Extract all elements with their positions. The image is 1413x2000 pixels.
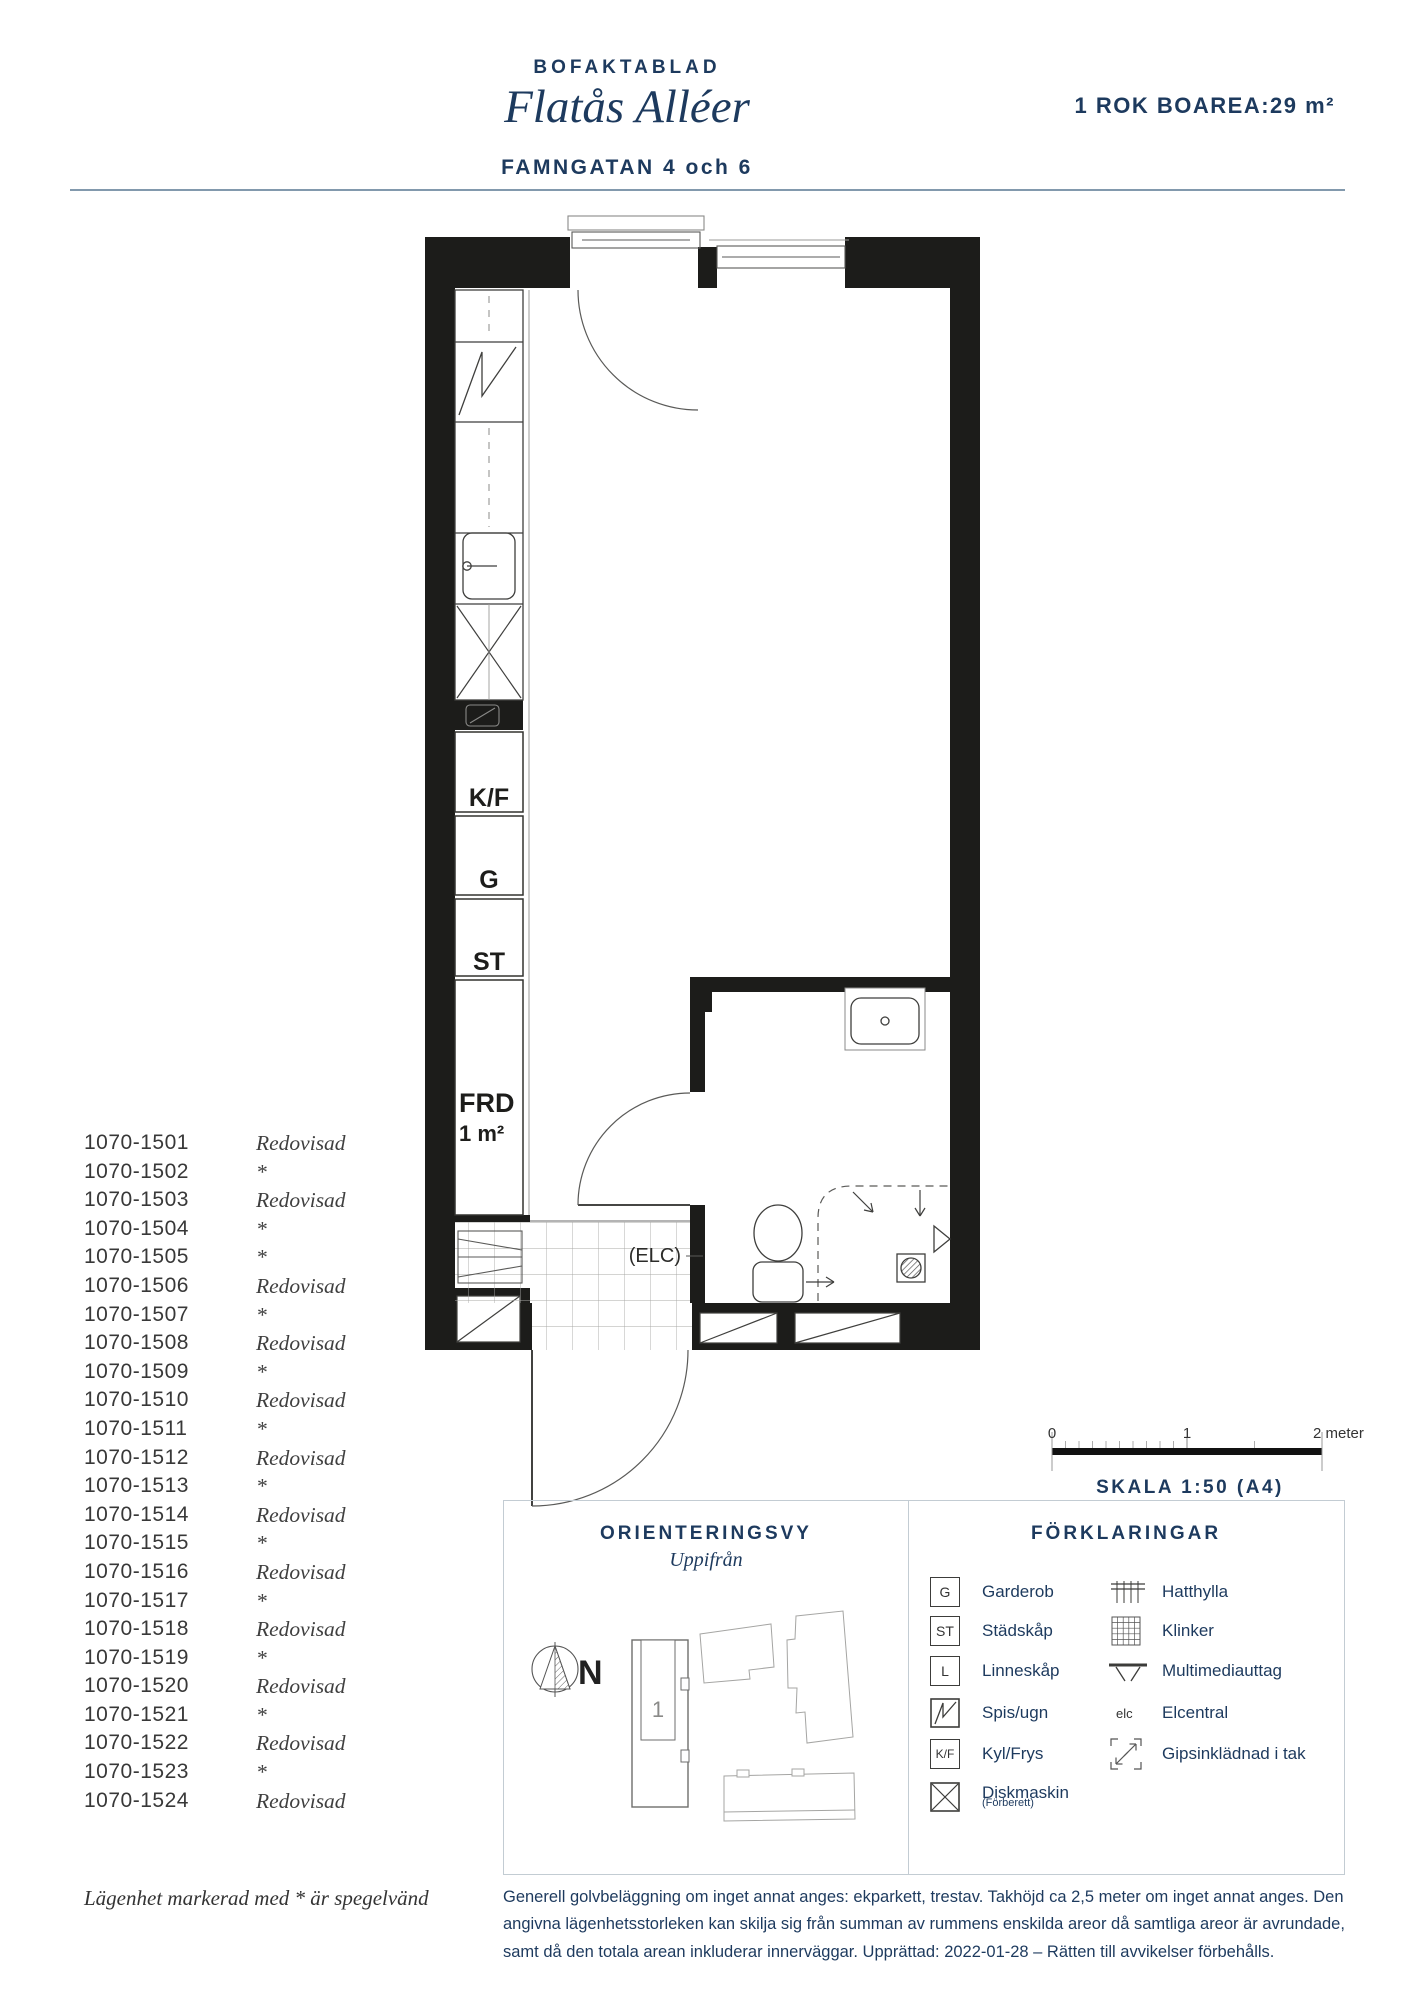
apartment-status: Redovisad — [256, 1386, 346, 1415]
apartment-status: Redovisad — [256, 1729, 346, 1758]
building-1-label: 1 — [652, 1697, 664, 1722]
apartment-row: 1070-1504 * — [84, 1215, 384, 1244]
building-3 — [787, 1611, 853, 1743]
legend-label-stadskap: Städskåp — [982, 1616, 1053, 1646]
apartment-status: * — [256, 1215, 267, 1244]
dishwasher-icon — [457, 604, 521, 700]
scale-label: SKALA 1:50 (A4) — [1040, 1477, 1340, 1499]
shower-boundary — [818, 1186, 948, 1301]
apartment-status: * — [256, 1758, 267, 1787]
legend-label-kylfrys: Kyl/Frys — [982, 1739, 1043, 1769]
building-4 — [724, 1773, 855, 1821]
apartment-status: * — [256, 1472, 267, 1501]
apartment-status: Redovisad — [256, 1558, 346, 1587]
apartment-id: 1070-1508 — [84, 1329, 189, 1358]
apartment-status: Redovisad — [256, 1501, 346, 1530]
apartment-id: 1070-1510 — [84, 1386, 189, 1415]
building-1 — [632, 1640, 689, 1807]
apartment-row: 1070-1505 * — [84, 1243, 384, 1272]
doc-type-heading: BOFAKTABLAD — [0, 57, 1254, 79]
apartment-row: 1070-1522 Redovisad — [84, 1729, 384, 1758]
floor-plan: K/F G ST FRD 1 m² (ELC) — [420, 210, 995, 1515]
apartment-row: 1070-1523 * — [84, 1758, 384, 1787]
apartment-status: * — [256, 1301, 267, 1330]
label-elc: (ELC) — [629, 1245, 681, 1267]
bathroom-door — [578, 1093, 690, 1205]
legend-label-hatthylla: Hatthylla — [1162, 1577, 1228, 1607]
apartment-id: 1070-1524 — [84, 1787, 189, 1816]
site-plan: N 1 — [510, 1592, 900, 1837]
legend-title: FÖRKLARINGAR — [908, 1523, 1344, 1545]
apartment-id: 1070-1502 — [84, 1158, 189, 1187]
kylfrys-icon: K/F — [930, 1739, 960, 1769]
multimedia-outlet-icon — [1106, 1661, 1150, 1691]
apartment-row: 1070-1517 * — [84, 1587, 384, 1616]
elcentral-icon: elc — [1116, 1706, 1133, 1721]
apartment-status: * — [256, 1701, 267, 1730]
apartment-status: Redovisad — [256, 1129, 346, 1158]
legend-panel: FÖRKLARINGAR G Garderob ST Städskåp L Li… — [908, 1500, 1345, 1875]
apartment-id: 1070-1520 — [84, 1672, 189, 1701]
address-subtitle: FAMNGATAN 4 och 6 — [0, 156, 1254, 180]
apartment-row: 1070-1503 Redovisad — [84, 1186, 384, 1215]
apartment-id: 1070-1511 — [84, 1415, 187, 1444]
apartment-row: 1070-1513 * — [84, 1472, 384, 1501]
apartment-status: * — [256, 1243, 267, 1272]
apartment-id: 1070-1505 — [84, 1243, 189, 1272]
apartment-status: * — [256, 1158, 267, 1187]
apartment-id: 1070-1519 — [84, 1644, 189, 1673]
apartment-id: 1070-1523 — [84, 1758, 189, 1787]
apartment-row: 1070-1524 Redovisad — [84, 1787, 384, 1816]
legend-label-spis: Spis/ugn — [982, 1698, 1048, 1728]
apartment-id: 1070-1513 — [84, 1472, 189, 1501]
legend-label-elcentral: Elcentral — [1162, 1698, 1228, 1728]
legend-label-multimediauttag: Multimediauttag — [1162, 1656, 1282, 1686]
shower-valve-icon — [934, 1226, 950, 1252]
scale-tick-1: 1 — [1183, 1425, 1191, 1442]
apartment-row: 1070-1510 Redovisad — [84, 1386, 384, 1415]
legend-label-gips: Gipsinklädnad i tak — [1162, 1739, 1306, 1769]
apartment-status: * — [256, 1644, 267, 1673]
apartment-id: 1070-1514 — [84, 1501, 189, 1530]
apartment-status: Redovisad — [256, 1787, 346, 1816]
stove-icon — [930, 1698, 960, 1728]
apartment-status: * — [256, 1529, 267, 1558]
apartment-id: 1070-1516 — [84, 1558, 189, 1587]
scale-tick-0: 0 — [1048, 1425, 1056, 1442]
apartment-row: 1070-1521 * — [84, 1701, 384, 1730]
apartment-row: 1070-1508 Redovisad — [84, 1329, 384, 1358]
apartment-id: 1070-1512 — [84, 1444, 189, 1473]
diskmaskin-icon — [930, 1782, 960, 1812]
hatthylla-icon — [1108, 1579, 1148, 1609]
legend-label-linneskap: Linneskåp — [982, 1656, 1060, 1686]
linneskap-icon: L — [930, 1656, 960, 1686]
apartment-id: 1070-1522 — [84, 1729, 189, 1758]
apartment-status: Redovisad — [256, 1615, 346, 1644]
apartment-id: 1070-1503 — [84, 1186, 189, 1215]
toilet-bowl — [754, 1205, 802, 1261]
kitchen-sink — [463, 533, 515, 599]
apartment-status: Redovisad — [256, 1444, 346, 1473]
building-2 — [700, 1624, 774, 1683]
apartment-row: 1070-1514 Redovisad — [84, 1501, 384, 1530]
apartment-status: Redovisad — [256, 1186, 346, 1215]
apartment-row: 1070-1520 Redovisad — [84, 1672, 384, 1701]
apartment-status: Redovisad — [256, 1672, 346, 1701]
label-g: G — [479, 866, 498, 894]
scale-bar: 0 1 2 meter — [1040, 1420, 1370, 1480]
apartment-id: 1070-1501 — [84, 1129, 189, 1158]
label-st: ST — [473, 948, 505, 976]
apartment-row: 1070-1512 Redovisad — [84, 1444, 384, 1473]
apartment-status: * — [256, 1358, 267, 1387]
apartment-row: 1070-1515 * — [84, 1529, 384, 1558]
stadskap-icon: ST — [930, 1616, 960, 1646]
apartment-row: 1070-1507 * — [84, 1301, 384, 1330]
legend-label-garderob: Garderob — [982, 1577, 1054, 1607]
header-divider — [70, 189, 1345, 191]
orientation-subtitle: Uppifrån — [504, 1549, 908, 1572]
entrance-door — [532, 1350, 688, 1506]
apartment-id: 1070-1506 — [84, 1272, 189, 1301]
apartment-status: Redovisad — [256, 1329, 346, 1358]
label-frd: FRD — [459, 1088, 515, 1118]
klinker-icon — [1111, 1616, 1141, 1646]
label-kf: K/F — [469, 784, 509, 812]
label-frd-area: 1 m² — [459, 1121, 504, 1146]
gips-icon — [1109, 1737, 1143, 1771]
apartment-id: 1070-1517 — [84, 1587, 189, 1616]
apartment-id: 1070-1509 — [84, 1358, 189, 1387]
apartment-id: 1070-1521 — [84, 1701, 189, 1730]
apartment-id: 1070-1504 — [84, 1215, 189, 1244]
orientation-title: ORIENTERINGSVY — [504, 1523, 908, 1545]
apartment-summary: 1 ROK BOAREA:29 m² — [1000, 93, 1335, 119]
site-buildings: 1 — [632, 1611, 855, 1821]
apartment-row: 1070-1501 Redovisad — [84, 1129, 384, 1158]
apartment-row: 1070-1511 * — [84, 1415, 384, 1444]
apartment-id: 1070-1515 — [84, 1529, 189, 1558]
apartment-row: 1070-1516 Redovisad — [84, 1558, 384, 1587]
north-arrow-icon: N — [532, 1642, 603, 1697]
legend-label-diskmaskin: Diskmaskin (Förberett) — [982, 1782, 1069, 1809]
bofaktablad-page: BOFAKTABLAD Flatås Alléer FAMNGATAN 4 oc… — [0, 0, 1413, 2000]
legend-label-klinker: Klinker — [1162, 1616, 1214, 1646]
apartment-status: Redovisad — [256, 1272, 346, 1301]
stove-icon — [459, 347, 516, 415]
apartment-id: 1070-1518 — [84, 1615, 189, 1644]
apartment-id: 1070-1507 — [84, 1301, 189, 1330]
apartment-list: 1070-1501 Redovisad 1070-1502 * 1070-150… — [84, 1129, 384, 1815]
scale-tick-2: 2 meter — [1313, 1425, 1364, 1442]
apartment-status: * — [256, 1587, 267, 1616]
garderob-icon: G — [930, 1577, 960, 1607]
bathroom — [753, 988, 950, 1302]
apartment-row: 1070-1518 Redovisad — [84, 1615, 384, 1644]
apartment-status: * — [256, 1415, 267, 1444]
apartment-row: 1070-1502 * — [84, 1158, 384, 1187]
disclaimer-text: Generell golvbeläggning om inget annat a… — [503, 1884, 1361, 1966]
north-label: N — [578, 1654, 603, 1692]
apartment-row: 1070-1509 * — [84, 1358, 384, 1387]
balcony-door — [568, 216, 704, 410]
mirror-note: Lägenhet markerad med * är spegelvänd — [84, 1886, 429, 1911]
window — [709, 240, 849, 268]
apartment-row: 1070-1506 Redovisad — [84, 1272, 384, 1301]
apartment-row: 1070-1519 * — [84, 1644, 384, 1673]
toilet-tank — [753, 1262, 803, 1302]
